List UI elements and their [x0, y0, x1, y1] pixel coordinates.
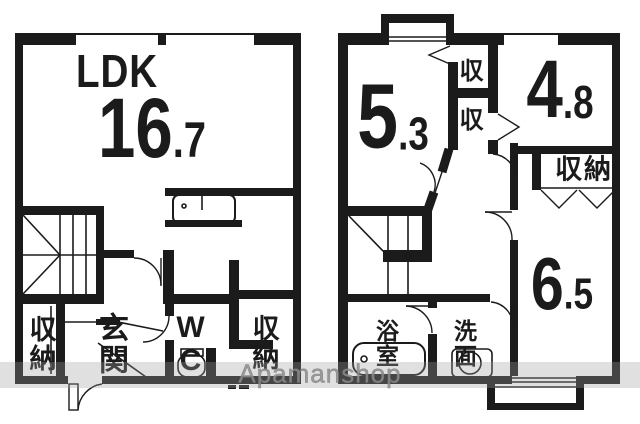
window	[76, 35, 158, 45]
area-int: 4	[526, 57, 562, 123]
room-6-5-door	[485, 212, 512, 240]
bathroom-door	[406, 306, 432, 333]
ldk-door	[134, 258, 161, 286]
bay-wall	[381, 14, 454, 23]
closet-a-door	[429, 46, 450, 64]
staircase-1f	[23, 215, 96, 294]
bay-opening	[389, 33, 446, 45]
wall	[229, 260, 239, 349]
area-int: 5	[357, 80, 398, 154]
window	[166, 35, 254, 45]
diagonal-wall	[427, 149, 449, 212]
wall	[488, 140, 498, 154]
storage-door	[579, 190, 615, 208]
watermark-text: Apamanshop	[238, 359, 401, 390]
balcony-wall	[487, 403, 584, 410]
wall	[338, 206, 430, 216]
wall	[428, 302, 437, 308]
wall	[293, 33, 301, 384]
wall	[338, 33, 620, 45]
storage-door	[541, 190, 577, 208]
area-label-5-3: 5 .3	[357, 80, 429, 154]
wall	[96, 206, 104, 304]
area-label-ldk: 16 .7	[98, 95, 206, 162]
kitchen-sink	[173, 190, 235, 223]
washroom-door	[491, 302, 513, 327]
wall	[165, 304, 174, 316]
area-dec: .5	[564, 277, 593, 314]
wall	[612, 33, 620, 384]
closet-lower-label: 収	[456, 107, 480, 133]
area-dec: .3	[398, 115, 429, 154]
wall	[18, 206, 104, 215]
wall	[238, 290, 301, 299]
area-dec: .8	[563, 84, 594, 123]
closet-label-2f: 収納	[555, 157, 613, 184]
floorplan-page: LDK 16 .7 収納 玄関 WC 収納 5 .3 収 収 4 .8 収納 6…	[0, 0, 640, 424]
wall	[510, 240, 518, 376]
area-label-4-8: 4 .8	[526, 57, 593, 123]
bay-wall	[446, 14, 454, 42]
wall	[345, 294, 490, 302]
wall	[532, 154, 541, 190]
wall	[448, 88, 498, 98]
wall	[104, 250, 134, 258]
wall	[488, 43, 498, 113]
closet-b-door	[498, 114, 519, 140]
wall	[516, 146, 620, 154]
area-int: 6	[531, 255, 564, 314]
closet-upper-label: 収	[456, 58, 480, 84]
wall	[163, 294, 231, 304]
area-int: 16	[98, 95, 173, 162]
area-label-6-5: 6 .5	[531, 255, 593, 314]
area-dec: .7	[173, 120, 206, 162]
